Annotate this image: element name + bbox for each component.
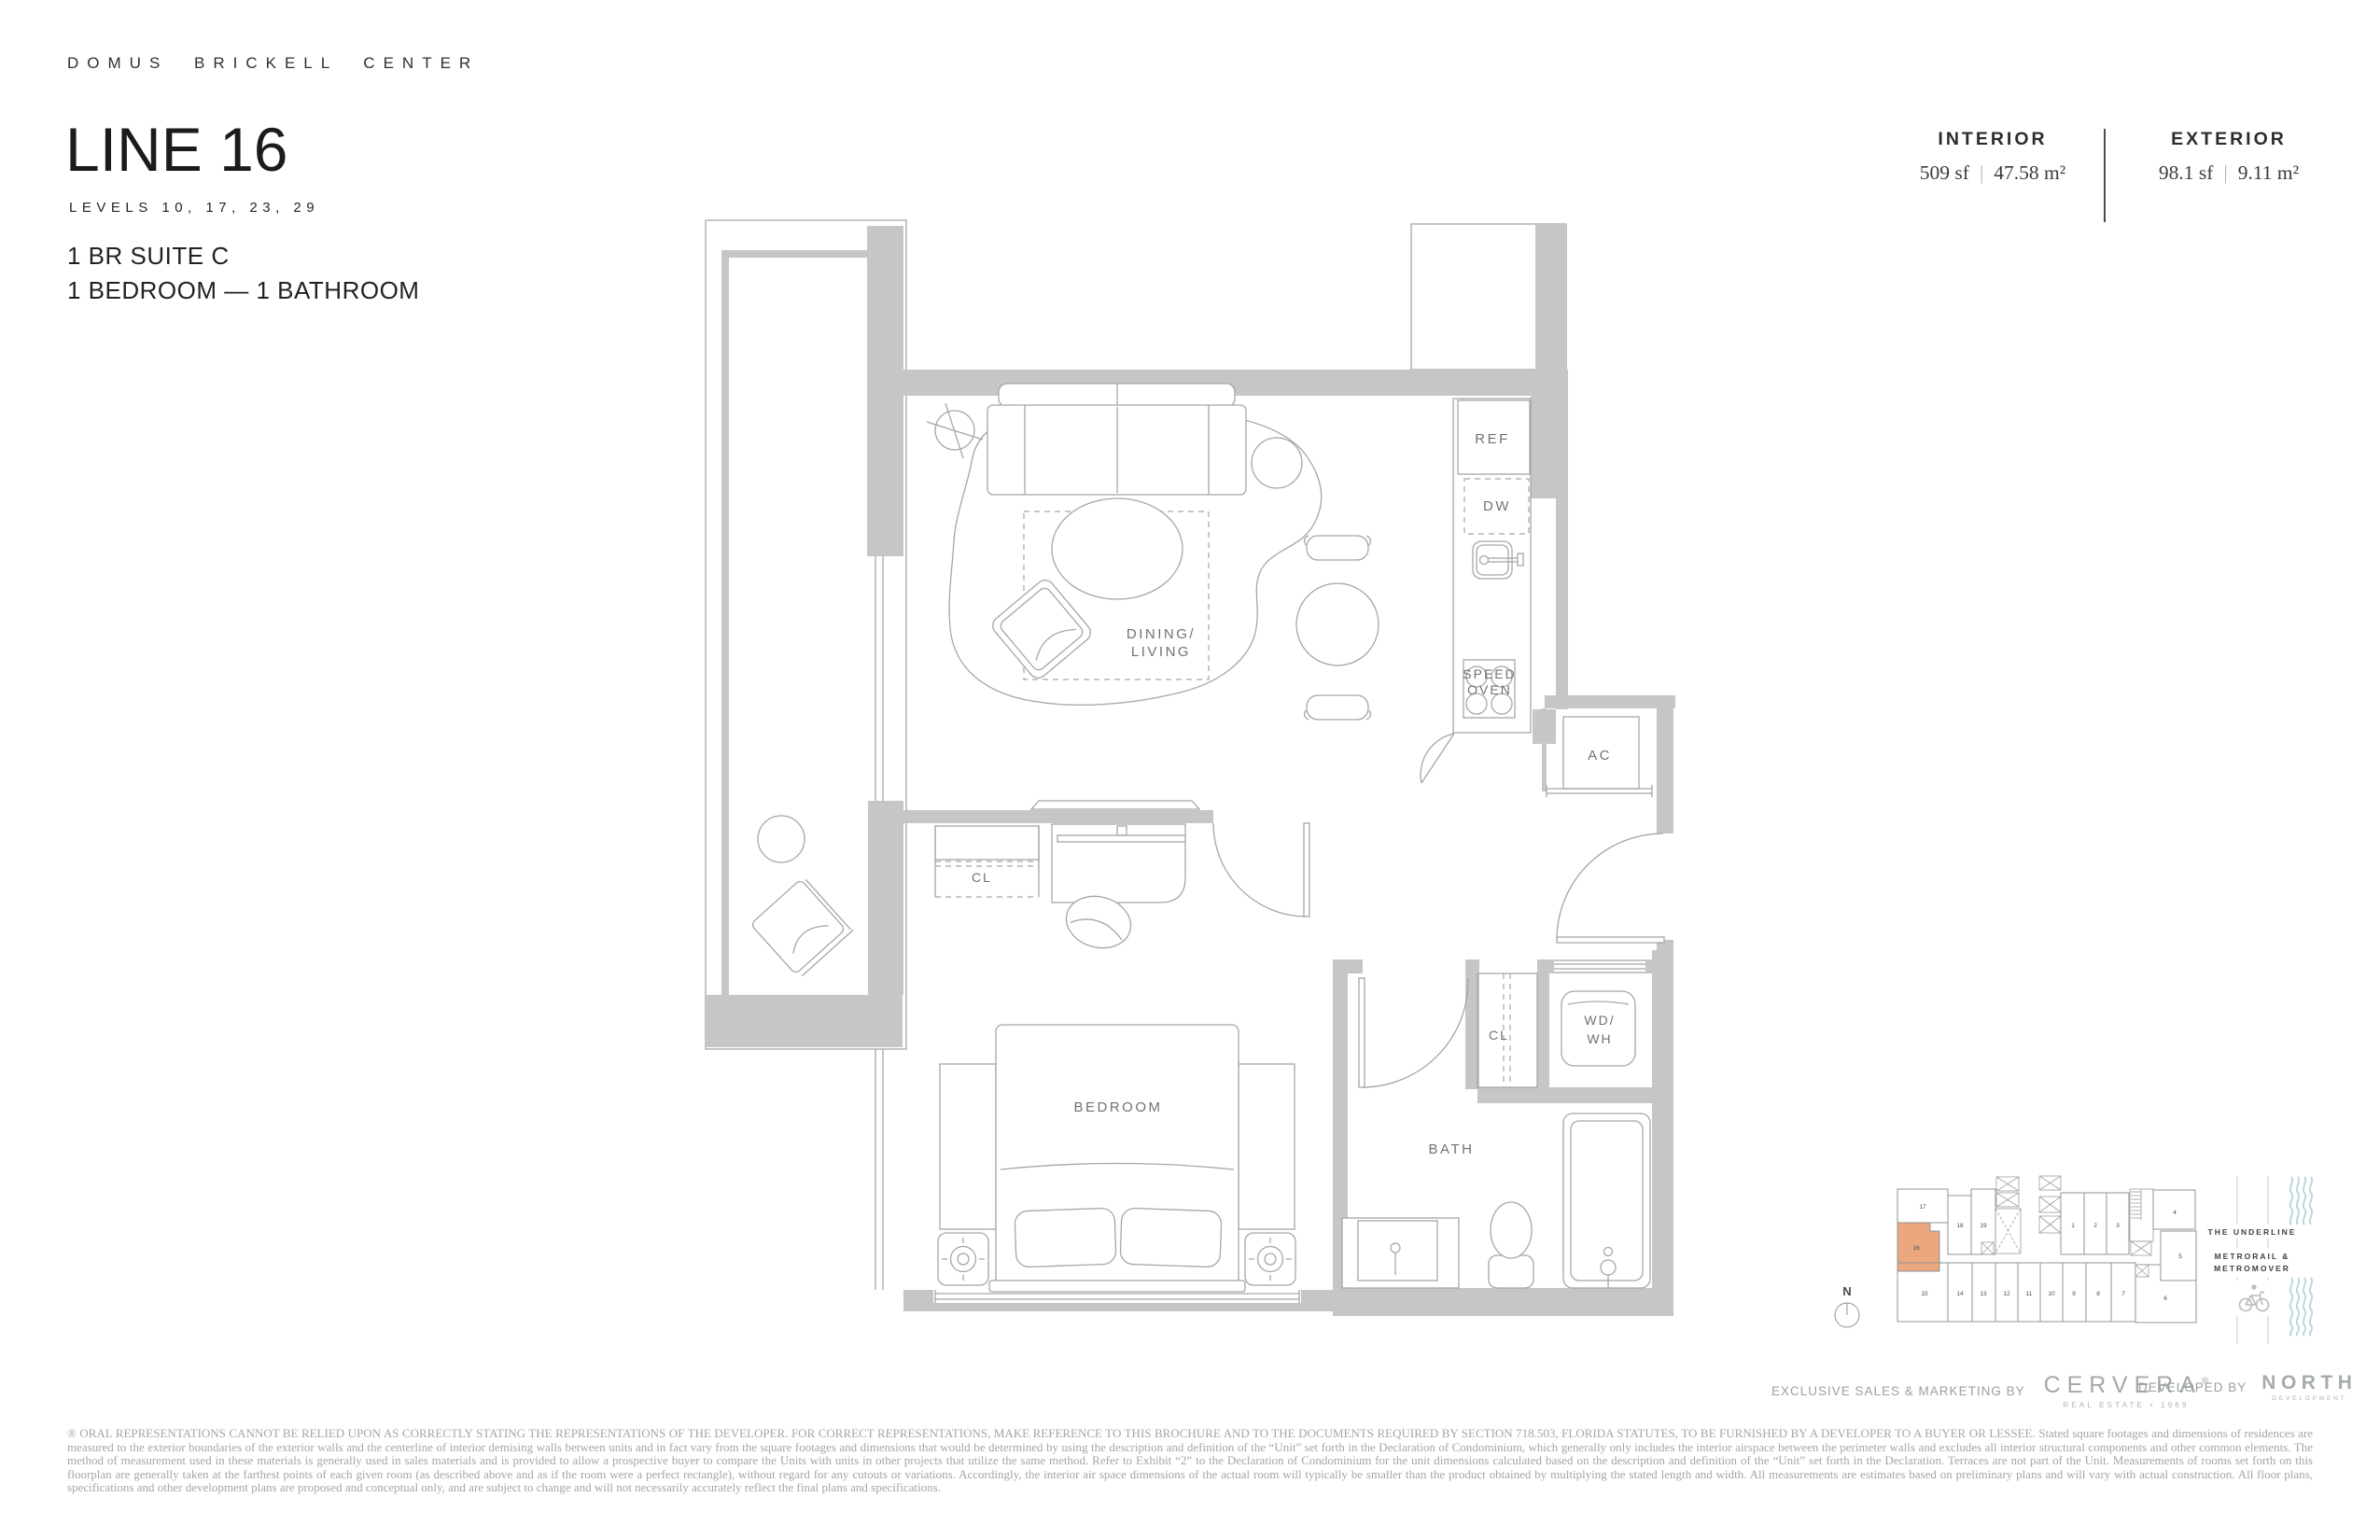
developer-credit: DEVELOPED BY NORTH DEVELOPMENT bbox=[2138, 1372, 2357, 1402]
unit-number: 12 bbox=[2003, 1291, 2010, 1297]
nightstand bbox=[1245, 1233, 1295, 1285]
coffee-table bbox=[1052, 498, 1183, 599]
north-arrow-icon: N bbox=[1835, 1284, 1859, 1327]
dining-set bbox=[1296, 536, 1379, 720]
suite-config: 1 BEDROOM — 1 BATHROOM bbox=[67, 273, 419, 308]
dining-chair bbox=[1305, 695, 1371, 720]
dining-chair bbox=[1305, 536, 1371, 560]
interior-sf: 509 sf bbox=[1920, 161, 1969, 184]
balcony-table bbox=[758, 816, 805, 862]
bed-rug bbox=[1239, 1064, 1295, 1229]
unit-number: 18 bbox=[1956, 1223, 1964, 1229]
unit-number: 10 bbox=[2048, 1291, 2055, 1297]
unit-number: 16 bbox=[1912, 1245, 1920, 1252]
counter-return bbox=[1421, 734, 1454, 783]
tv-console bbox=[1031, 801, 1199, 809]
bedroom bbox=[935, 824, 1295, 1292]
metromover-label: METROMOVER bbox=[2214, 1264, 2290, 1273]
key-plan: N bbox=[1820, 1162, 2380, 1358]
room-label-bedroom: BEDROOM bbox=[1073, 1099, 1162, 1115]
balcony-chair bbox=[750, 875, 853, 978]
bedroom-door bbox=[1213, 823, 1309, 917]
room-label-speed-oven: OVEN bbox=[1467, 682, 1512, 697]
sales-prefix: EXCLUSIVE SALES & MARKETING BY bbox=[1771, 1384, 2025, 1398]
unit-number: 15 bbox=[1921, 1291, 1928, 1297]
bath-door bbox=[1359, 978, 1468, 1087]
suite-description: 1 BR SUITE C 1 BEDROOM — 1 BATHROOM bbox=[67, 239, 419, 308]
room-label-linen: CL bbox=[1489, 1028, 1509, 1043]
cervera-tagline: REAL ESTATE • 1969 bbox=[2063, 1401, 2189, 1409]
unit-number: 5 bbox=[2178, 1253, 2182, 1260]
value-separator: | bbox=[1969, 161, 1994, 184]
room-label-dw: DW bbox=[1483, 498, 1511, 514]
room-label-dining: DINING/ bbox=[1127, 626, 1196, 642]
desk-chair bbox=[1060, 889, 1137, 955]
room-label-wdwh: WH bbox=[1587, 1031, 1612, 1046]
unit-number: 19 bbox=[1980, 1223, 1987, 1229]
sofa bbox=[987, 384, 1246, 495]
room-label-speed-oven: SPEED bbox=[1463, 666, 1516, 681]
room-label-wdwh: WD/ bbox=[1584, 1013, 1615, 1028]
floorplan-sheet: DOMUS BRICKELL CENTER LINE 16 LEVELS 10,… bbox=[0, 0, 2380, 1540]
stairs bbox=[2130, 1189, 2153, 1255]
transit-context: THE UNDERLINE METRORAIL & METROMOVER bbox=[2205, 1176, 2312, 1344]
toilet bbox=[1489, 1202, 1533, 1288]
kitchen bbox=[1421, 399, 1531, 783]
underline-label: THE UNDERLINE bbox=[2208, 1227, 2297, 1237]
value-separator: | bbox=[2213, 161, 2237, 184]
developed-prefix: DEVELOPED BY bbox=[2138, 1380, 2247, 1394]
interior-label: INTERIOR bbox=[1910, 129, 2076, 150]
unit-number: 4 bbox=[2173, 1210, 2177, 1216]
north-tagline: DEVELOPMENT bbox=[2272, 1395, 2346, 1402]
area-divider bbox=[2104, 129, 2106, 222]
unit-number: 9 bbox=[2072, 1291, 2076, 1297]
levels-line: LEVELS 10, 17, 23, 29 bbox=[69, 200, 319, 216]
kitchen-sink bbox=[1473, 541, 1523, 579]
floorplan-drawing: REF DW SPEED OVEN AC DINING/ LIVING CL B… bbox=[700, 213, 1689, 1328]
page-title: LINE 16 bbox=[65, 114, 287, 185]
unit-number: 7 bbox=[2121, 1291, 2125, 1297]
unit-number: 17 bbox=[1919, 1204, 1926, 1211]
side-table bbox=[1252, 438, 1302, 488]
interior-values: 509 sf|47.58 m² bbox=[1910, 161, 2076, 185]
entry-door bbox=[1557, 833, 1664, 943]
nightstand bbox=[938, 1233, 988, 1285]
room-label-ref: REF bbox=[1475, 431, 1510, 447]
dining-table bbox=[1296, 583, 1379, 665]
bathtub bbox=[1563, 1113, 1650, 1288]
exterior-area: EXTERIOR 98.1 sf|9.11 m² bbox=[2134, 129, 2325, 222]
suite-type: 1 BR SUITE C bbox=[67, 239, 419, 273]
unit-number: 6 bbox=[2163, 1295, 2167, 1302]
unit-number: 11 bbox=[2026, 1291, 2033, 1297]
walls bbox=[867, 370, 1675, 1316]
balcony bbox=[706, 220, 906, 1049]
north-development-logo: NORTH DEVELOPMENT bbox=[2261, 1372, 2357, 1402]
lounge-chair bbox=[989, 577, 1095, 682]
vanity-sink bbox=[1342, 1218, 1459, 1288]
room-label-closet: CL bbox=[972, 870, 992, 885]
desk bbox=[1052, 824, 1185, 903]
room-label-ac: AC bbox=[1588, 748, 1612, 763]
legal-disclaimer: ® ORAL REPRESENTATIONS CANNOT BE RELIED … bbox=[67, 1427, 2313, 1495]
bedroom-closet bbox=[935, 826, 1039, 897]
interior-area: INTERIOR 509 sf|47.58 m² bbox=[1910, 129, 2076, 222]
north-label: N bbox=[1842, 1284, 1851, 1298]
exterior-m2: 9.11 m² bbox=[2238, 161, 2299, 184]
bed bbox=[989, 1025, 1245, 1292]
exterior-label: EXTERIOR bbox=[2134, 129, 2325, 150]
bed-rug bbox=[940, 1064, 996, 1229]
bathroom bbox=[1342, 961, 1650, 1288]
area-summary: INTERIOR 509 sf|47.58 m² EXTERIOR 98.1 s… bbox=[1910, 129, 2325, 222]
unit-number: 8 bbox=[2096, 1291, 2100, 1297]
building-footprint: 17 16 18 19 1 2 3 4 5 6 15 14 13 12 11 1… bbox=[1897, 1176, 2196, 1323]
unit-number: 14 bbox=[1956, 1291, 1964, 1297]
unit-number: 3 bbox=[2116, 1223, 2120, 1229]
exterior-values: 98.1 sf|9.11 m² bbox=[2134, 161, 2325, 185]
room-label-dining: LIVING bbox=[1131, 644, 1191, 660]
room-label-bath: BATH bbox=[1429, 1141, 1475, 1157]
adjacent-shaft bbox=[1411, 224, 1566, 371]
unit-number: 13 bbox=[1980, 1291, 1987, 1297]
metrorail-label: METRORAIL & bbox=[2215, 1252, 2290, 1261]
interior-m2: 47.58 m² bbox=[1994, 161, 2065, 184]
brand-name: DOMUS BRICKELL CENTER bbox=[67, 54, 479, 73]
north-wordmark: NORTH bbox=[2261, 1372, 2357, 1394]
unit-number: 1 bbox=[2071, 1223, 2075, 1229]
exterior-sf: 98.1 sf bbox=[2159, 161, 2214, 184]
living-dining bbox=[927, 384, 1379, 809]
unit-number: 2 bbox=[2093, 1223, 2097, 1229]
